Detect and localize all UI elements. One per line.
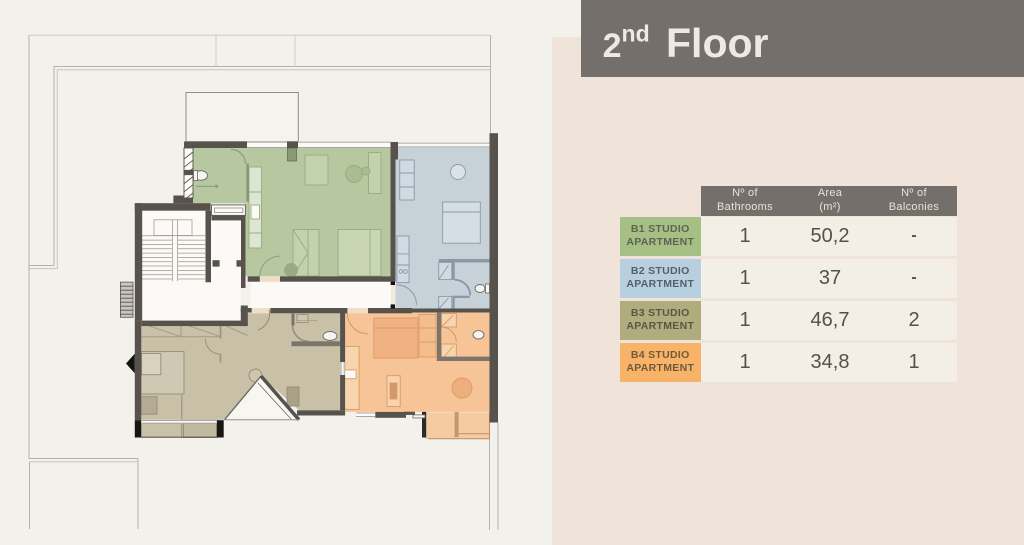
svg-text:2nd Floor: 2nd Floor xyxy=(603,20,769,66)
